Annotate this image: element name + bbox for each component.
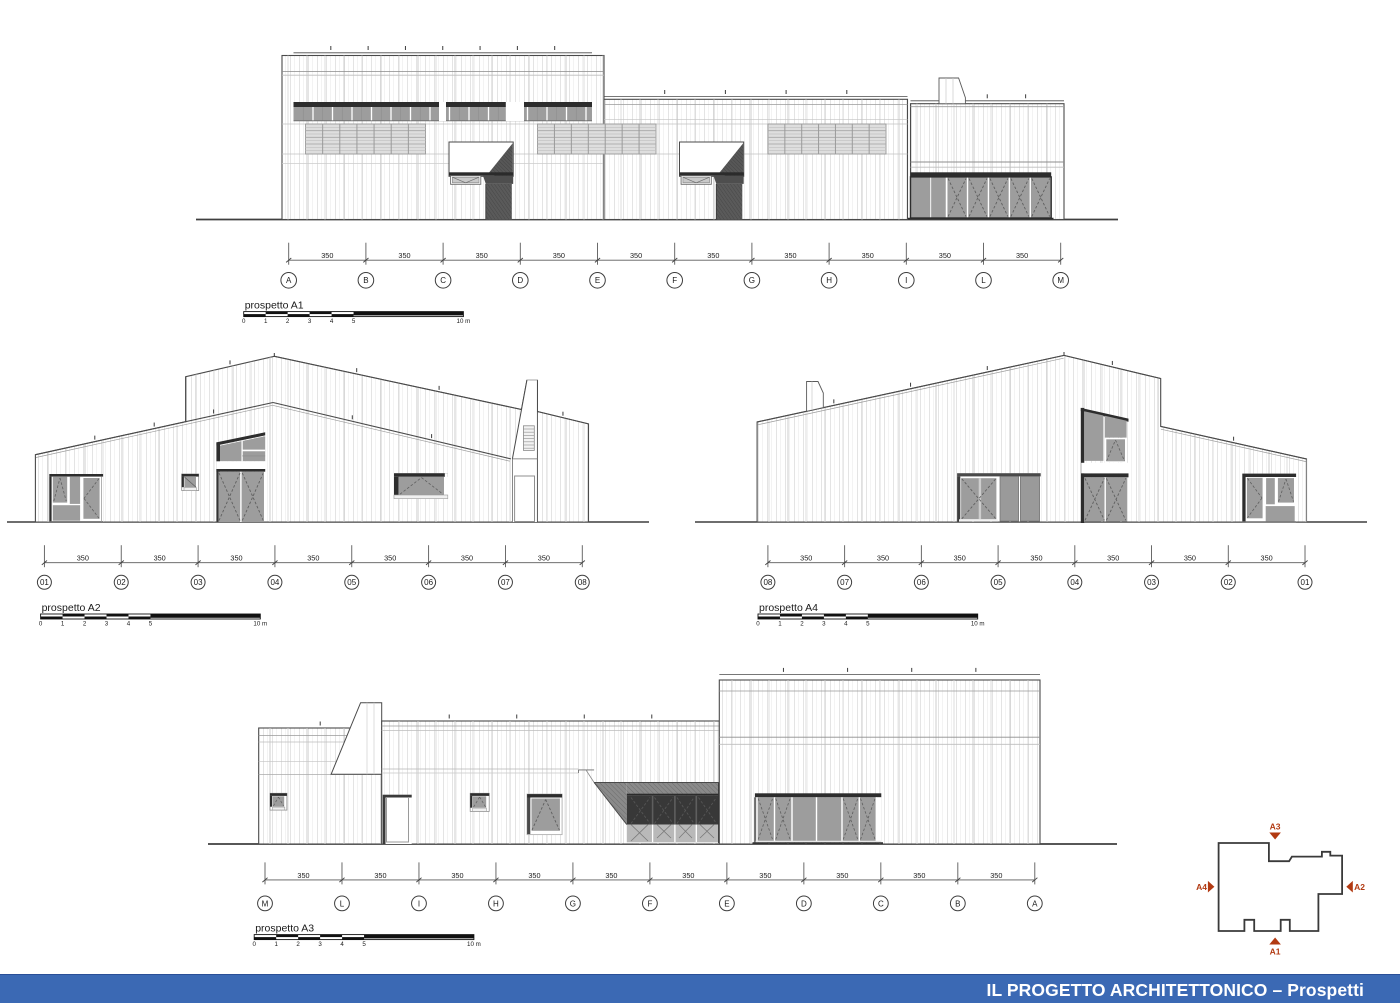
svg-text:02: 02 <box>1224 578 1233 587</box>
svg-text:2: 2 <box>800 620 804 627</box>
svg-text:E: E <box>724 899 729 908</box>
svg-text:E: E <box>595 276 600 285</box>
svg-text:350: 350 <box>1016 251 1028 260</box>
svg-text:350: 350 <box>800 554 812 563</box>
svg-text:350: 350 <box>1261 554 1273 563</box>
svg-text:350: 350 <box>836 871 848 880</box>
svg-text:L: L <box>981 276 986 285</box>
svg-text:350: 350 <box>230 554 242 563</box>
svg-text:3: 3 <box>105 620 109 627</box>
svg-text:F: F <box>672 276 677 285</box>
svg-text:08: 08 <box>578 578 587 587</box>
svg-text:5: 5 <box>866 620 870 627</box>
svg-text:3: 3 <box>822 620 826 627</box>
svg-text:350: 350 <box>784 251 796 260</box>
svg-text:04: 04 <box>270 578 279 587</box>
svg-text:H: H <box>493 899 499 908</box>
svg-text:0: 0 <box>252 941 256 948</box>
svg-text:05: 05 <box>994 578 1003 587</box>
svg-text:350: 350 <box>538 554 550 563</box>
svg-text:L: L <box>340 899 345 908</box>
svg-text:A: A <box>286 276 292 285</box>
svg-text:01: 01 <box>40 578 49 587</box>
svg-text:B: B <box>955 899 960 908</box>
svg-text:350: 350 <box>384 554 396 563</box>
svg-text:350: 350 <box>990 871 1002 880</box>
svg-text:350: 350 <box>605 871 617 880</box>
svg-text:C: C <box>440 276 446 285</box>
svg-text:350: 350 <box>707 251 719 260</box>
svg-text:350: 350 <box>398 251 410 260</box>
svg-text:4: 4 <box>340 941 344 948</box>
svg-text:350: 350 <box>374 871 386 880</box>
svg-text:350: 350 <box>476 251 488 260</box>
svg-text:350: 350 <box>553 251 565 260</box>
svg-text:350: 350 <box>528 871 540 880</box>
svg-text:1: 1 <box>61 620 65 627</box>
svg-text:B: B <box>363 276 368 285</box>
svg-text:3: 3 <box>318 941 322 948</box>
svg-text:5: 5 <box>149 620 153 627</box>
svg-text:350: 350 <box>682 871 694 880</box>
svg-text:1: 1 <box>264 318 268 325</box>
svg-text:I: I <box>905 276 907 285</box>
svg-text:10 m: 10 m <box>971 620 985 627</box>
svg-text:prospetto A2: prospetto A2 <box>42 602 101 614</box>
svg-text:08: 08 <box>763 578 772 587</box>
svg-text:350: 350 <box>1184 554 1196 563</box>
svg-text:5: 5 <box>352 318 356 325</box>
svg-text:M: M <box>1057 276 1064 285</box>
svg-text:350: 350 <box>1030 554 1042 563</box>
svg-text:prospetto A4: prospetto A4 <box>759 602 818 614</box>
svg-text:0: 0 <box>39 620 43 627</box>
svg-text:F: F <box>647 899 652 908</box>
svg-text:350: 350 <box>321 251 333 260</box>
svg-text:I: I <box>418 899 420 908</box>
svg-text:A4: A4 <box>1196 882 1207 892</box>
svg-text:D: D <box>517 276 523 285</box>
svg-text:01: 01 <box>1301 578 1310 587</box>
svg-text:A: A <box>1032 899 1038 908</box>
svg-text:350: 350 <box>307 554 319 563</box>
svg-text:350: 350 <box>939 251 951 260</box>
svg-text:G: G <box>749 276 755 285</box>
svg-text:03: 03 <box>194 578 203 587</box>
svg-text:350: 350 <box>877 554 889 563</box>
svg-text:5: 5 <box>362 941 366 948</box>
svg-text:350: 350 <box>630 251 642 260</box>
svg-text:H: H <box>826 276 832 285</box>
svg-text:2: 2 <box>83 620 87 627</box>
svg-text:0: 0 <box>242 318 246 325</box>
svg-text:02: 02 <box>117 578 126 587</box>
svg-text:4: 4 <box>127 620 131 627</box>
svg-text:350: 350 <box>913 871 925 880</box>
svg-text:06: 06 <box>917 578 926 587</box>
svg-text:4: 4 <box>844 620 848 627</box>
svg-text:350: 350 <box>451 871 463 880</box>
svg-text:10 m: 10 m <box>253 620 267 627</box>
svg-text:2: 2 <box>296 941 300 948</box>
svg-text:A3: A3 <box>1270 822 1281 832</box>
svg-text:350: 350 <box>297 871 309 880</box>
svg-text:1: 1 <box>274 941 278 948</box>
svg-text:prospetto A1: prospetto A1 <box>245 299 304 311</box>
svg-text:07: 07 <box>501 578 510 587</box>
svg-text:10 m: 10 m <box>467 941 481 948</box>
svg-text:350: 350 <box>954 554 966 563</box>
svg-text:10 m: 10 m <box>457 318 471 325</box>
svg-text:G: G <box>570 899 576 908</box>
svg-text:350: 350 <box>461 554 473 563</box>
svg-text:03: 03 <box>1147 578 1156 587</box>
svg-text:M: M <box>262 899 269 908</box>
svg-text:350: 350 <box>759 871 771 880</box>
svg-text:prospetto A3: prospetto A3 <box>255 922 314 934</box>
svg-text:04: 04 <box>1070 578 1079 587</box>
svg-text:350: 350 <box>1107 554 1119 563</box>
svg-text:4: 4 <box>330 318 334 325</box>
svg-text:A2: A2 <box>1354 882 1365 892</box>
svg-text:3: 3 <box>308 318 312 325</box>
svg-text:0: 0 <box>756 620 760 627</box>
svg-text:05: 05 <box>347 578 356 587</box>
svg-text:07: 07 <box>840 578 849 587</box>
svg-text:A1: A1 <box>1270 947 1281 957</box>
svg-text:C: C <box>878 899 884 908</box>
svg-text:D: D <box>801 899 807 908</box>
svg-text:06: 06 <box>424 578 433 587</box>
svg-text:350: 350 <box>862 251 874 260</box>
svg-text:2: 2 <box>286 318 290 325</box>
svg-text:350: 350 <box>77 554 89 563</box>
svg-text:350: 350 <box>154 554 166 563</box>
svg-text:1: 1 <box>778 620 782 627</box>
